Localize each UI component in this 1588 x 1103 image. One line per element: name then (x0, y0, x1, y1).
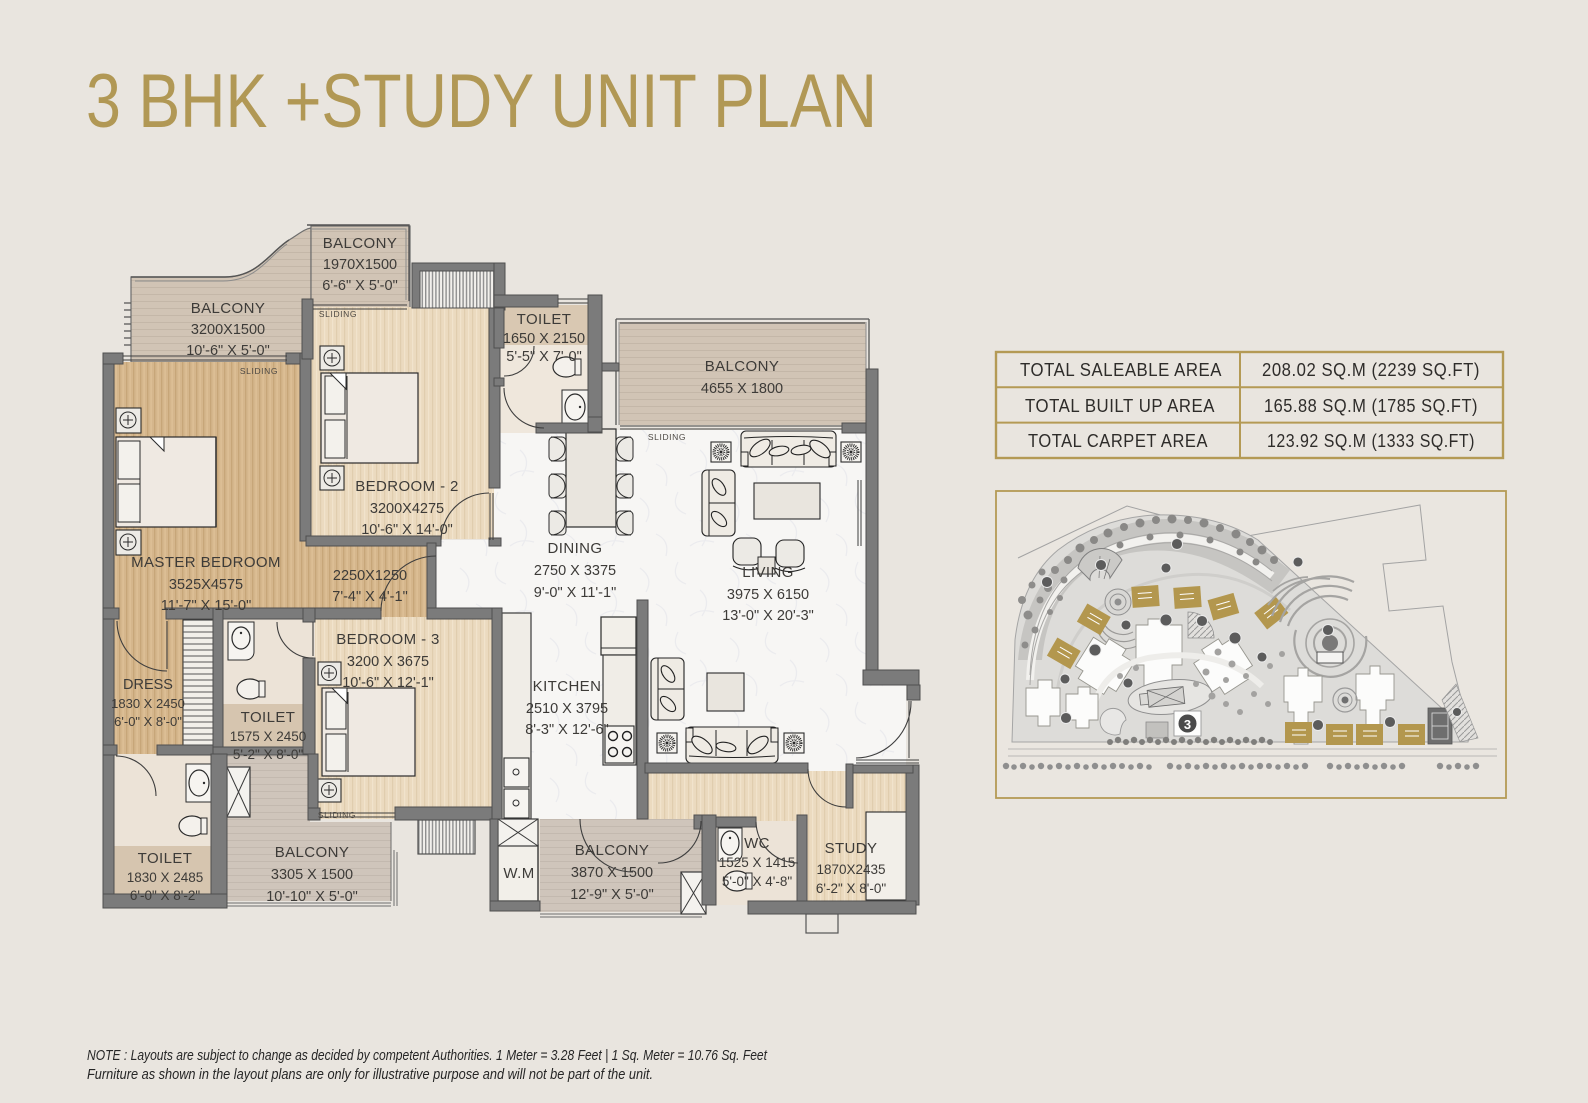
svg-text:NOTE : Layouts are subject to: NOTE : Layouts are subject to change as … (87, 1048, 768, 1064)
svg-text:STUDY: STUDY (825, 840, 878, 857)
svg-text:6'-0" X 8'-0": 6'-0" X 8'-0" (114, 714, 182, 729)
svg-text:1575 X 2450: 1575 X 2450 (230, 729, 307, 744)
svg-text:TOTAL CARPET AREA: TOTAL CARPET AREA (1028, 430, 1208, 451)
svg-text:6'-2" X 8'-0": 6'-2" X 8'-0" (816, 881, 886, 896)
svg-text:2510 X 3795: 2510 X 3795 (526, 701, 608, 717)
svg-text:10'-6" X 14'-0": 10'-6" X 14'-0" (361, 522, 453, 538)
svg-text:12'-9" X 5'-0": 12'-9" X 5'-0" (570, 887, 654, 903)
svg-text:BALCONY: BALCONY (575, 842, 650, 859)
svg-text:BEDROOM - 2: BEDROOM - 2 (355, 478, 459, 495)
svg-text:TOILET: TOILET (517, 311, 572, 328)
svg-text:3975 X 6150: 3975 X 6150 (727, 587, 809, 603)
svg-text:BALCONY: BALCONY (323, 235, 398, 252)
svg-text:4655 X 1800: 4655 X 1800 (701, 381, 783, 397)
svg-text:5'-2" X 8'-0": 5'-2" X 8'-0" (233, 747, 303, 762)
svg-text:Furniture as shown in the layo: Furniture as shown in the layout plans a… (87, 1067, 653, 1083)
svg-text:10'-6" X 12'-1": 10'-6" X 12'-1" (342, 675, 434, 691)
svg-text:1870X2435: 1870X2435 (816, 862, 885, 877)
svg-text:BALCONY: BALCONY (191, 300, 266, 317)
svg-text:SLIDING: SLIDING (240, 366, 278, 376)
svg-text:13'-0" X 20'-3": 13'-0" X 20'-3" (722, 608, 814, 624)
svg-text:3200X1500: 3200X1500 (191, 322, 265, 338)
svg-text:SLIDING: SLIDING (319, 309, 357, 319)
svg-text:BALCONY: BALCONY (275, 844, 350, 861)
svg-text:BEDROOM - 3: BEDROOM - 3 (336, 631, 440, 648)
svg-text:3: 3 (1184, 717, 1191, 732)
svg-text:3 BHK +STUDY UNIT PLAN: 3 BHK +STUDY UNIT PLAN (86, 59, 877, 144)
svg-text:10'-6" X 5'-0": 10'-6" X 5'-0" (186, 343, 270, 359)
svg-text:10'-10" X 5'-0": 10'-10" X 5'-0" (266, 889, 358, 905)
svg-text:1525 X 1415: 1525 X 1415 (719, 855, 796, 870)
svg-text:DINING: DINING (548, 540, 603, 557)
svg-text:BALCONY: BALCONY (705, 358, 780, 375)
svg-text:3200X4275: 3200X4275 (370, 501, 444, 517)
svg-text:5'-0" X 4'-8": 5'-0" X 4'-8" (722, 874, 792, 889)
svg-text:KITCHEN: KITCHEN (533, 678, 602, 695)
svg-text:WC: WC (744, 835, 770, 852)
svg-text:3200 X 3675: 3200 X 3675 (347, 654, 429, 670)
svg-text:123.92 SQ.M (1333 SQ.FT): 123.92 SQ.M (1333 SQ.FT) (1267, 430, 1475, 451)
svg-text:TOILET: TOILET (241, 709, 296, 726)
svg-text:W.M: W.M (503, 865, 534, 882)
svg-text:SLIDING: SLIDING (648, 432, 686, 442)
svg-text:9'-0" X 11'-1": 9'-0" X 11'-1" (534, 585, 616, 601)
svg-text:MASTER BEDROOM: MASTER BEDROOM (131, 554, 281, 571)
svg-text:LIVING: LIVING (742, 564, 794, 581)
svg-text:TOTAL BUILT UP AREA: TOTAL BUILT UP AREA (1025, 395, 1215, 416)
svg-text:208.02 SQ.M (2239 SQ.FT): 208.02 SQ.M (2239 SQ.FT) (1262, 359, 1480, 380)
svg-text:6'-6" X 5'-0": 6'-6" X 5'-0" (322, 278, 397, 294)
svg-text:2250X1250: 2250X1250 (333, 568, 407, 584)
svg-text:3870 X 1500: 3870 X 1500 (571, 865, 653, 881)
svg-text:1830 X 2485: 1830 X 2485 (127, 870, 204, 885)
svg-text:5'-5" X 7'-0": 5'-5" X 7'-0" (506, 349, 581, 365)
svg-text:8'-3" X 12'-6": 8'-3" X 12'-6" (525, 722, 609, 738)
svg-text:11'-7" X 15'-0": 11'-7" X 15'-0" (161, 598, 252, 614)
svg-text:TOILET: TOILET (138, 850, 193, 867)
svg-text:1970X1500: 1970X1500 (323, 257, 397, 273)
svg-text:3525X4575: 3525X4575 (169, 577, 243, 593)
svg-text:2750 X 3375: 2750 X 3375 (534, 563, 616, 579)
svg-text:3305 X 1500: 3305 X 1500 (271, 867, 353, 883)
svg-text:1830 X 2450: 1830 X 2450 (111, 696, 185, 711)
svg-text:TOTAL SALEABLE AREA: TOTAL SALEABLE AREA (1020, 359, 1222, 380)
svg-text:7'-4" X 4'-1": 7'-4" X 4'-1" (332, 589, 407, 605)
svg-text:165.88 SQ.M (1785 SQ.FT): 165.88 SQ.M (1785 SQ.FT) (1264, 395, 1478, 416)
svg-text:DRESS: DRESS (123, 677, 173, 693)
svg-text:1650 X 2150: 1650 X 2150 (503, 331, 585, 347)
svg-text:SLIDING: SLIDING (318, 810, 356, 820)
svg-text:6'-0" X 8'-2": 6'-0" X 8'-2" (130, 888, 200, 903)
